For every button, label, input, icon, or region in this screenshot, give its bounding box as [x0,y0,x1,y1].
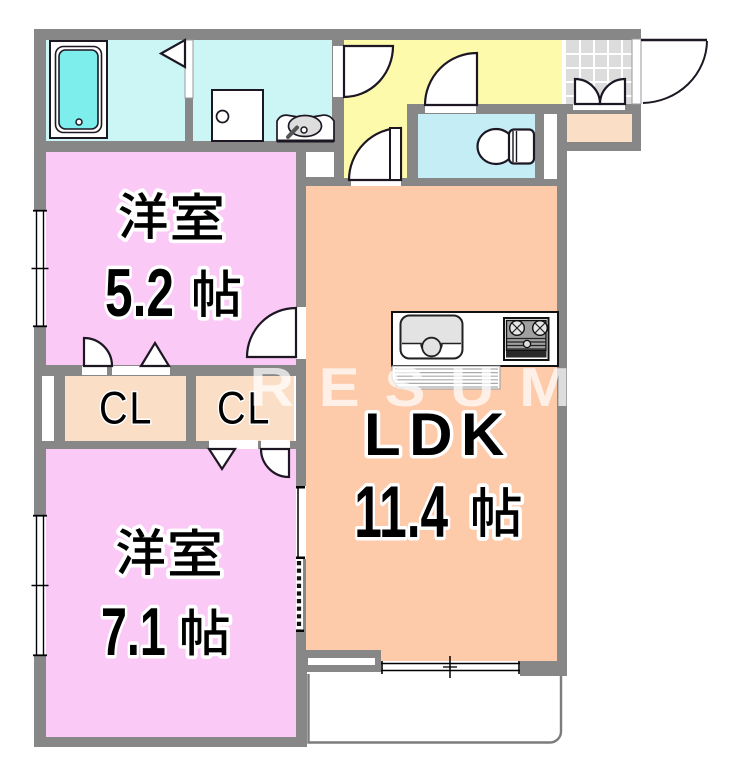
svg-text:7.1: 7.1 [101,594,166,670]
svg-text:5.2: 5.2 [105,254,174,331]
svg-text:11.4: 11.4 [354,472,448,554]
svg-text:RESUM: RESUM [250,357,596,418]
svg-text:CL: CL [99,383,153,433]
